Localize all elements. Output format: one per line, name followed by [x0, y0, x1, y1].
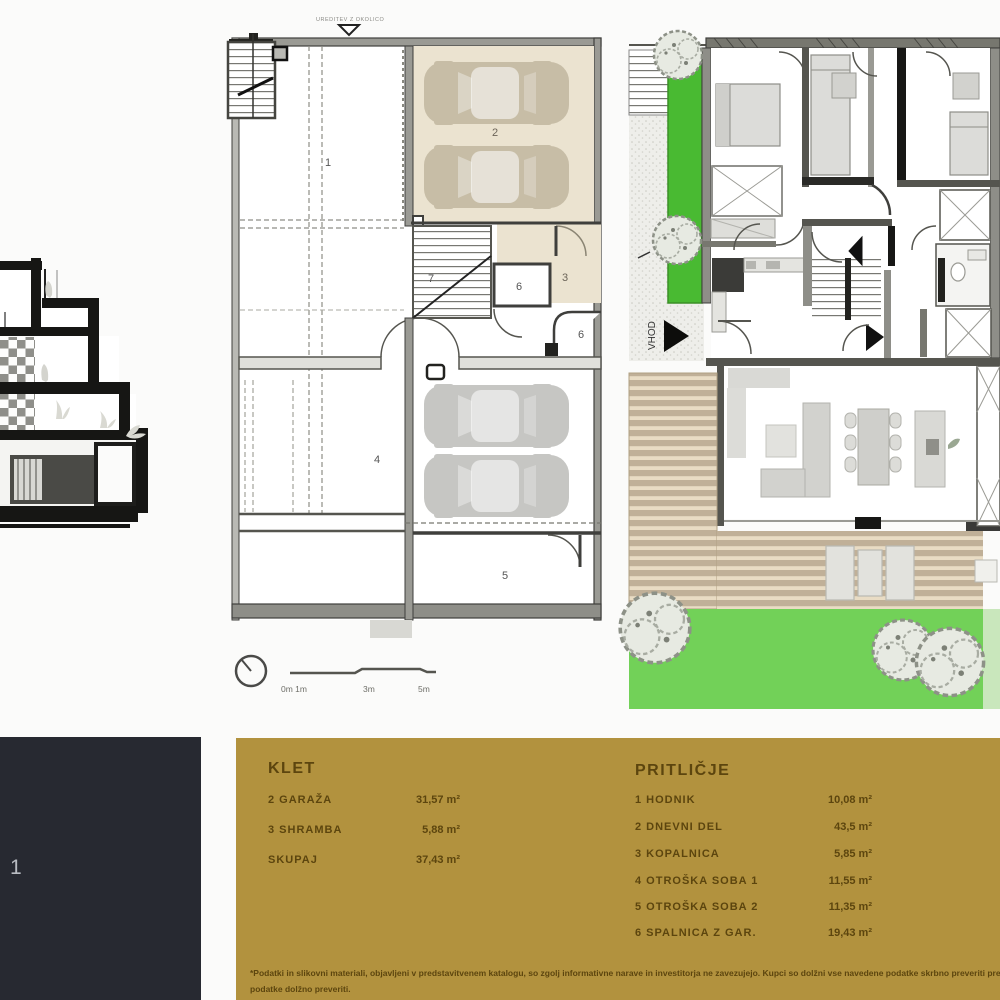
svg-text:5m: 5m	[418, 684, 430, 694]
svg-text:5,85 m²: 5,85 m²	[834, 848, 872, 860]
svg-text:5 OTROŠKA SOBA 2: 5 OTROŠKA SOBA 2	[635, 900, 758, 913]
svg-text:VHOD: VHOD	[647, 321, 658, 350]
svg-text:43,5 m²: 43,5 m²	[834, 821, 872, 833]
svg-text:0m 1m: 0m 1m	[281, 684, 307, 694]
svg-text:2 DNEVNI DEL: 2 DNEVNI DEL	[635, 821, 723, 833]
svg-text:3: 3	[562, 272, 568, 284]
svg-text:2: 2	[492, 127, 498, 139]
svg-text:1: 1	[325, 157, 331, 169]
svg-text:2 GARAŽA: 2 GARAŽA	[268, 793, 332, 806]
svg-text:11,55 m²: 11,55 m²	[829, 875, 873, 887]
svg-text:4 OTROŠKA SOBA 1: 4 OTROŠKA SOBA 1	[635, 874, 758, 887]
svg-text:1 HODNIK: 1 HODNIK	[635, 794, 696, 806]
svg-text:3 SHRAMBA: 3 SHRAMBA	[268, 824, 342, 836]
svg-text:6 SPALNICA Z GAR.: 6 SPALNICA Z GAR.	[635, 927, 757, 939]
svg-text:3 KOPALNICA: 3 KOPALNICA	[635, 848, 720, 860]
svg-text:PRITLIČJE: PRITLIČJE	[635, 760, 730, 779]
svg-text:7: 7	[428, 273, 434, 285]
svg-text:SKUPAJ: SKUPAJ	[268, 854, 318, 866]
svg-text:5: 5	[502, 570, 508, 582]
svg-text:podatke dolžno preveriti.: podatke dolžno preveriti.	[250, 984, 351, 994]
svg-text:*Podatki in slikovni materiali: *Podatki in slikovni materiali, objavlje…	[250, 968, 1000, 978]
svg-text:3m: 3m	[363, 684, 375, 694]
svg-text:37,43 m²: 37,43 m²	[416, 854, 460, 866]
svg-text:6: 6	[578, 329, 584, 341]
svg-text:UREDITEV Z OKOLICO: UREDITEV Z OKOLICO	[316, 17, 385, 23]
svg-text:19,43 m²: 19,43 m²	[828, 927, 872, 939]
svg-text:KLET: KLET	[268, 760, 316, 777]
svg-text:5,88 m²: 5,88 m²	[422, 824, 460, 836]
svg-text:10,08 m²: 10,08 m²	[828, 794, 872, 806]
svg-text:6: 6	[516, 281, 522, 293]
svg-text:1: 1	[10, 856, 22, 879]
svg-text:11,35 m²: 11,35 m²	[829, 901, 873, 913]
svg-text:4: 4	[374, 454, 380, 466]
svg-text:31,57 m²: 31,57 m²	[416, 794, 460, 806]
